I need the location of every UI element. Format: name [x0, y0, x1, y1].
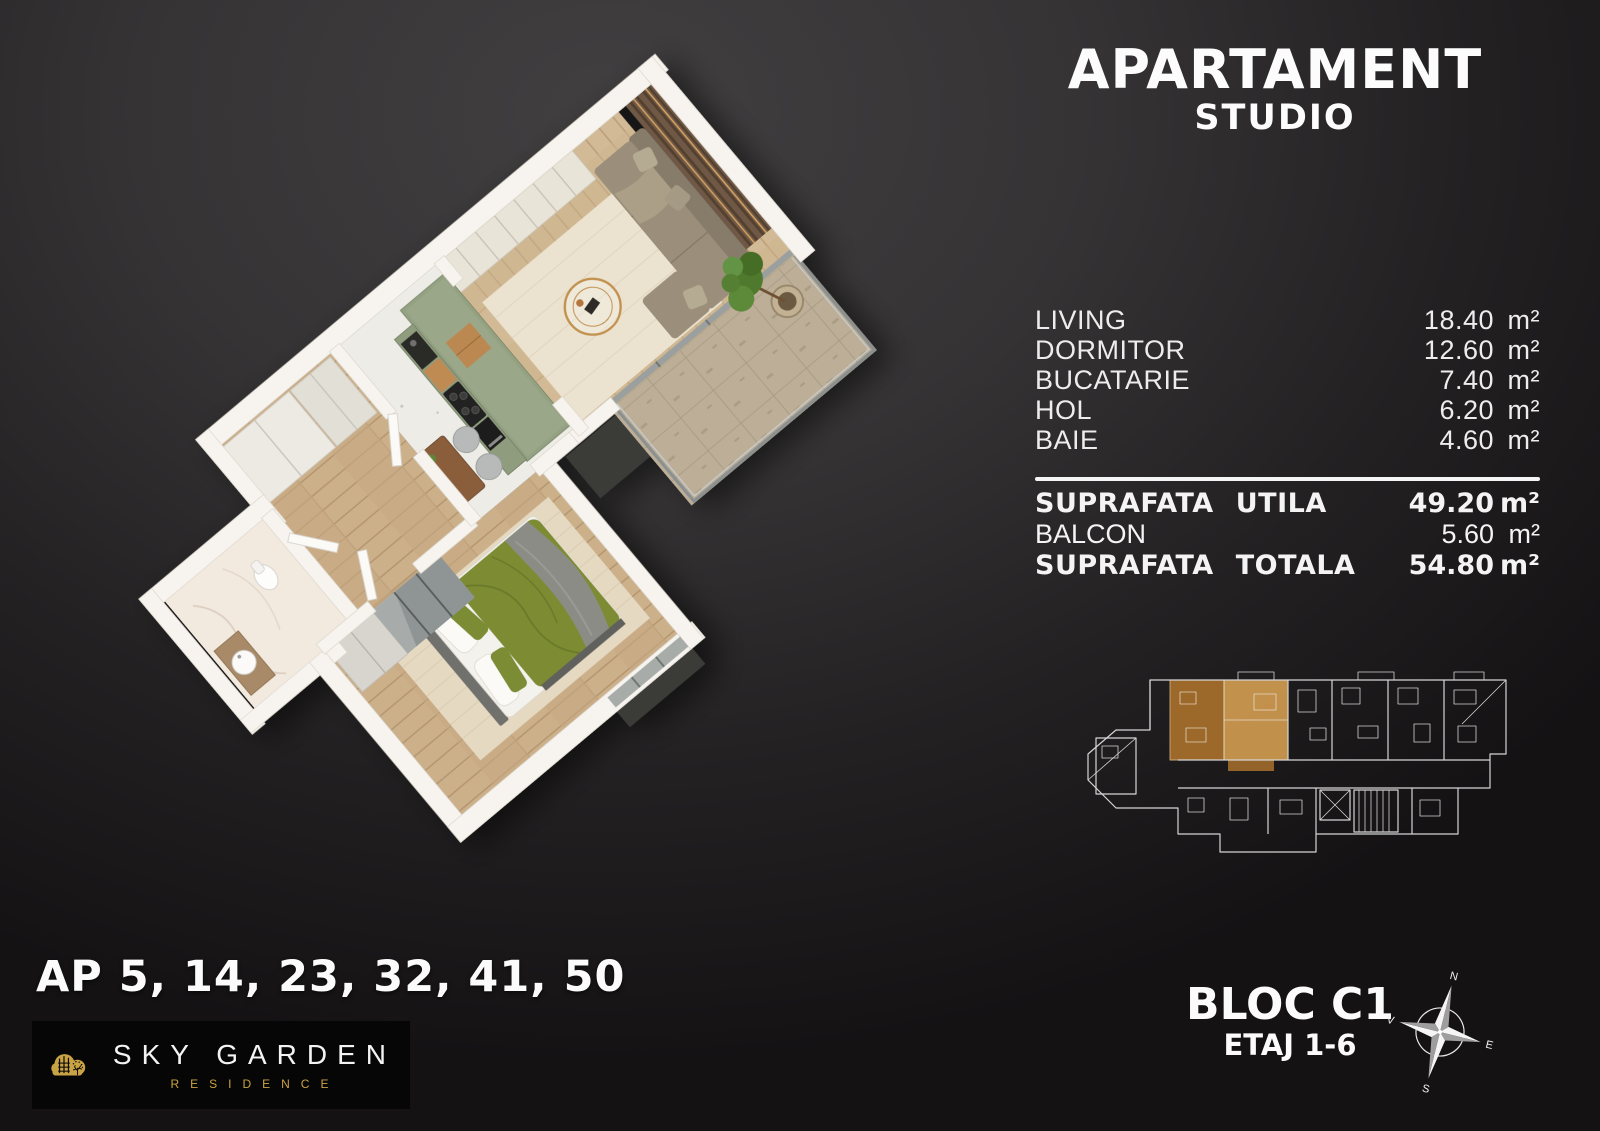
room-area-value: 7.40: [1402, 365, 1494, 396]
room-label: DORMITOR: [1035, 335, 1402, 366]
compass-rose-icon: N E S V: [1380, 968, 1500, 1098]
logo-brand-name: SKY GARDEN: [103, 1039, 396, 1071]
title-line1: APARTAMENT: [1010, 42, 1540, 98]
floorplan-3d-render: [0, 8, 980, 938]
compass-west-label: V: [1385, 1014, 1396, 1028]
floor-overview-plan: [1058, 642, 1528, 867]
room-area-value: 4.60: [1402, 425, 1494, 456]
logo-text: SKY GARDEN RESIDENCE: [103, 1039, 396, 1091]
stairs: [1354, 790, 1398, 832]
area-row-bucatarie: BUCATARIE 7.40 m²: [1035, 365, 1540, 395]
total-unit: m²: [1494, 519, 1540, 550]
area-row-dormitor: DORMITOR 12.60 m²: [1035, 335, 1540, 365]
total-row-balcon: BALCON 5.60 m²: [1035, 519, 1540, 550]
apartment-numbers: AP 5, 14, 23, 32, 41, 50: [36, 952, 625, 1002]
highlighted-unit-balcony: [1228, 760, 1274, 771]
room-label: LIVING: [1035, 305, 1402, 336]
total-label: SUPRAFATA TOTALA: [1035, 550, 1402, 581]
area-row-living: LIVING 18.40 m²: [1035, 305, 1540, 335]
building-outline: [1088, 680, 1506, 852]
room-area-value: 6.20: [1402, 395, 1494, 426]
brand-logo: SKY GARDEN RESIDENCE: [32, 1021, 410, 1109]
total-row-totala: SUPRAFATA TOTALA 54.80 m²: [1035, 550, 1540, 581]
total-unit: m²: [1494, 488, 1540, 519]
room-area-unit: m²: [1494, 335, 1540, 366]
totals-table: SUPRAFATA UTILA 49.20 m² BALCON 5.60 m² …: [1035, 488, 1540, 581]
compass-east-label: E: [1484, 1039, 1494, 1052]
total-unit: m²: [1494, 550, 1540, 581]
title-line2: STUDIO: [1010, 100, 1540, 136]
flyer-page: APARTAMENT STUDIO LIVING 18.40 m² DORMIT…: [0, 0, 1600, 1131]
room-label: BAIE: [1035, 425, 1402, 456]
room-area-unit: m²: [1494, 425, 1540, 456]
total-value: 5.60: [1402, 519, 1494, 550]
room-area-unit: m²: [1494, 305, 1540, 336]
logo-cloud-icon: [46, 1029, 93, 1101]
total-value: 54.80: [1402, 550, 1494, 581]
divider-line: [1035, 477, 1540, 481]
highlighted-unit-living: [1170, 680, 1224, 760]
total-label: BALCON: [1035, 519, 1402, 550]
page-title: APARTAMENT STUDIO: [1010, 42, 1540, 137]
room-area-table: LIVING 18.40 m² DORMITOR 12.60 m² BUCATA…: [1035, 305, 1540, 455]
room-area-value: 18.40: [1402, 305, 1494, 336]
area-row-baie: BAIE 4.60 m²: [1035, 425, 1540, 455]
room-label: HOL: [1035, 395, 1402, 426]
total-label: SUPRAFATA UTILA: [1035, 488, 1402, 519]
room-area-value: 12.60: [1402, 335, 1494, 366]
room-label: BUCATARIE: [1035, 365, 1402, 396]
room-area-unit: m²: [1494, 365, 1540, 396]
compass-south-label: S: [1421, 1083, 1431, 1096]
logo-sub-name: RESIDENCE: [159, 1077, 339, 1091]
logo-building: [58, 1056, 70, 1073]
room-area-unit: m²: [1494, 395, 1540, 426]
compass-north-label: N: [1448, 970, 1459, 984]
total-value: 49.20: [1402, 488, 1494, 519]
area-row-hol: HOL 6.20 m²: [1035, 395, 1540, 425]
total-row-utila: SUPRAFATA UTILA 49.20 m²: [1035, 488, 1540, 519]
